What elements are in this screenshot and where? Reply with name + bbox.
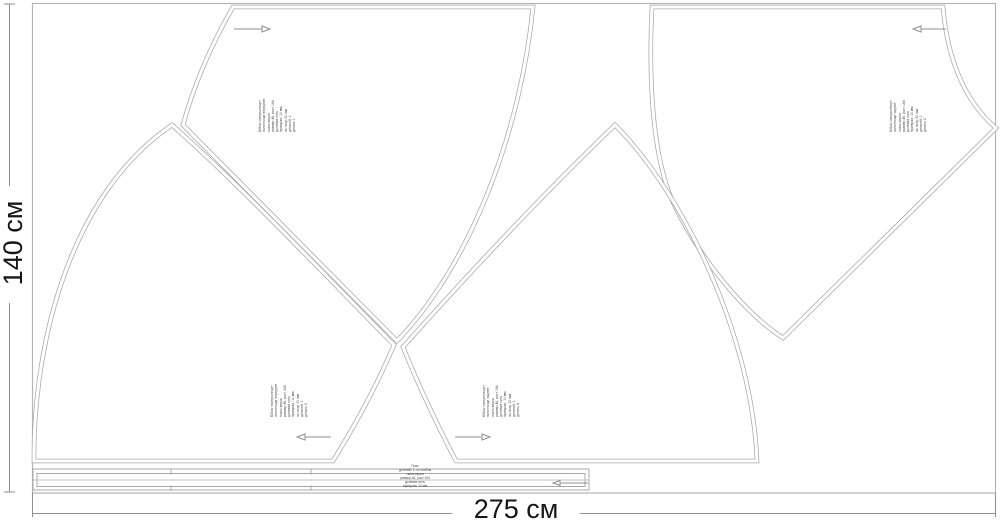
fabric-height-label: 140 см: [0, 201, 28, 286]
piece-annotation-bottom-center: Юбка «полусолнце» полотнище заднее ткань…: [482, 325, 520, 417]
waistband: [33, 469, 589, 490]
piece-annotation-bottom-left: Юбка «полусолнце» полотнище переднее тка…: [270, 325, 308, 417]
pattern-layout-sheet: 140 см 275 см Юбка «полусолнце» полотнищ…: [0, 0, 1000, 524]
piece-annotation-top-right: Юбка «полусолнце» полотнище заднее ткань…: [889, 40, 927, 132]
pattern-layout-svg: 140 см 275 см: [0, 0, 1000, 524]
fabric-width-label: 275 см: [474, 494, 559, 524]
waistband-annotation: Пояс деталей: 1, со сгибом ткань верха р…: [352, 464, 478, 489]
piece-annotation-top-left: Юбка «полусолнце» полотнище переднее тка…: [258, 40, 296, 132]
